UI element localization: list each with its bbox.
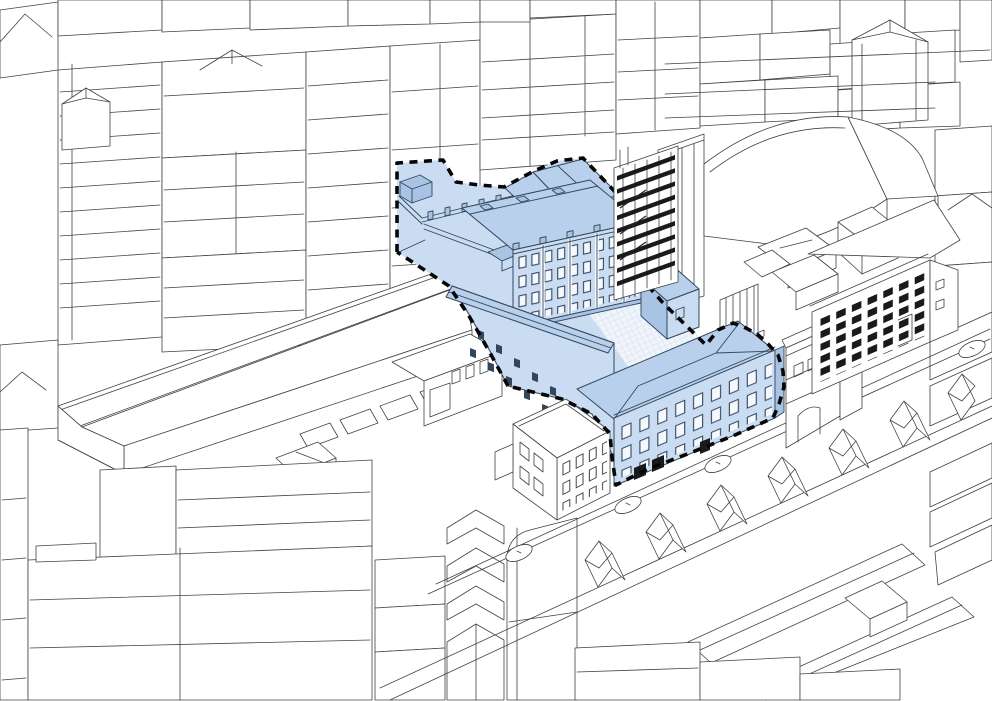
site-axonometric-drawing (0, 0, 992, 701)
corner-building (495, 399, 610, 520)
construction-frame-tower (614, 146, 678, 300)
bottom-left-blocks (0, 428, 577, 700)
